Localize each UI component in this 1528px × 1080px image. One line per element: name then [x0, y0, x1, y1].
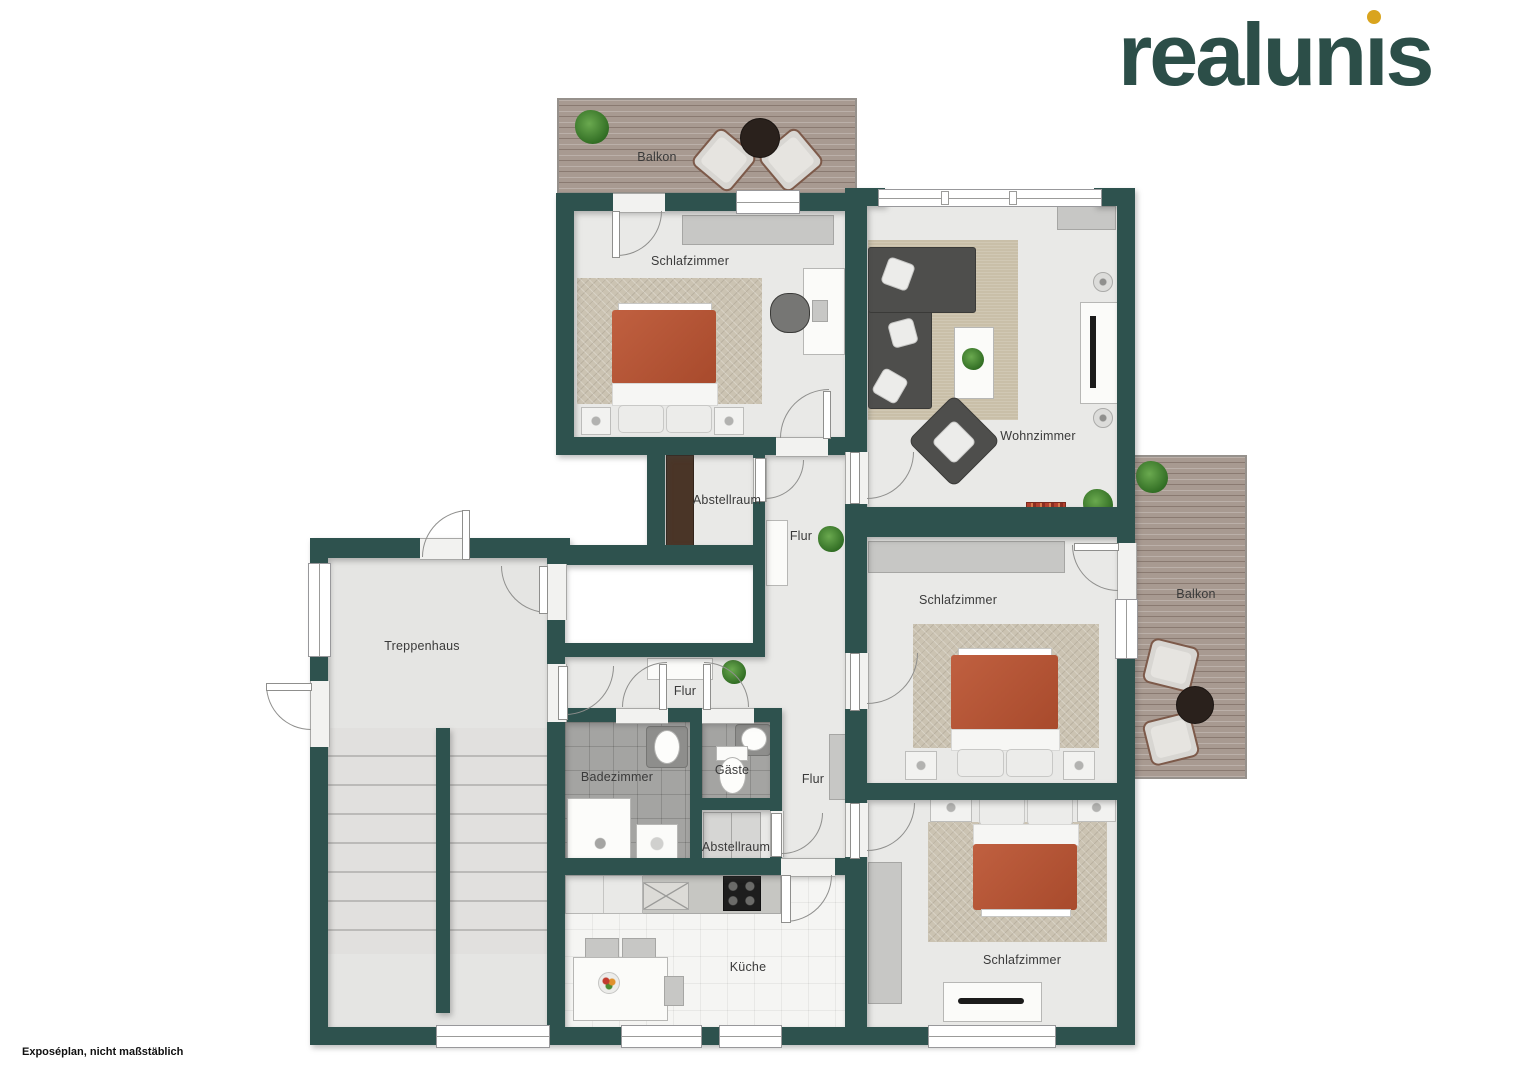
logo-letter-i: ı	[1364, 5, 1385, 104]
logo-text: s	[1386, 5, 1432, 104]
room-label-badezimmer: Badezimmer	[581, 770, 653, 784]
room-label-schlafzimmer-top: Schlafzimmer	[651, 254, 729, 268]
logo-dot-icon	[1367, 10, 1381, 24]
room-label-flur-mid: Flur	[674, 684, 696, 698]
room-label-abstellraum-bottom: Abstellraum	[702, 840, 770, 854]
room-label-treppenhaus: Treppenhaus	[384, 639, 459, 653]
room-label-balkon-top: Balkon	[637, 150, 676, 164]
room-label-kueche: Küche	[730, 960, 766, 974]
room-label-schlafzimmer-bottom: Schlafzimmer	[983, 953, 1061, 967]
plan-disclaimer: Exposéplan, nicht maßstäblich	[22, 1046, 183, 1058]
room-label-flur-top: Flur	[790, 529, 812, 543]
room-label-gaeste: Gäste	[715, 763, 749, 777]
room-label-wohnzimmer: Wohnzimmer	[1000, 429, 1075, 443]
label-layer: Balkon Schlafzimmer Wohnzimmer Abstellra…	[0, 0, 1528, 1080]
room-label-balkon-right: Balkon	[1176, 587, 1215, 601]
room-label-schlafzimmer-mid: Schlafzimmer	[919, 593, 997, 607]
floorplan-canvas: Balkon Schlafzimmer Wohnzimmer Abstellra…	[0, 0, 1528, 1080]
logo-text: realun	[1118, 5, 1364, 104]
brand-logo: realunıs	[1118, 4, 1432, 106]
room-label-flur-bottom: Flur	[802, 772, 824, 786]
room-label-abstellraum-top: Abstellraum	[693, 493, 761, 507]
